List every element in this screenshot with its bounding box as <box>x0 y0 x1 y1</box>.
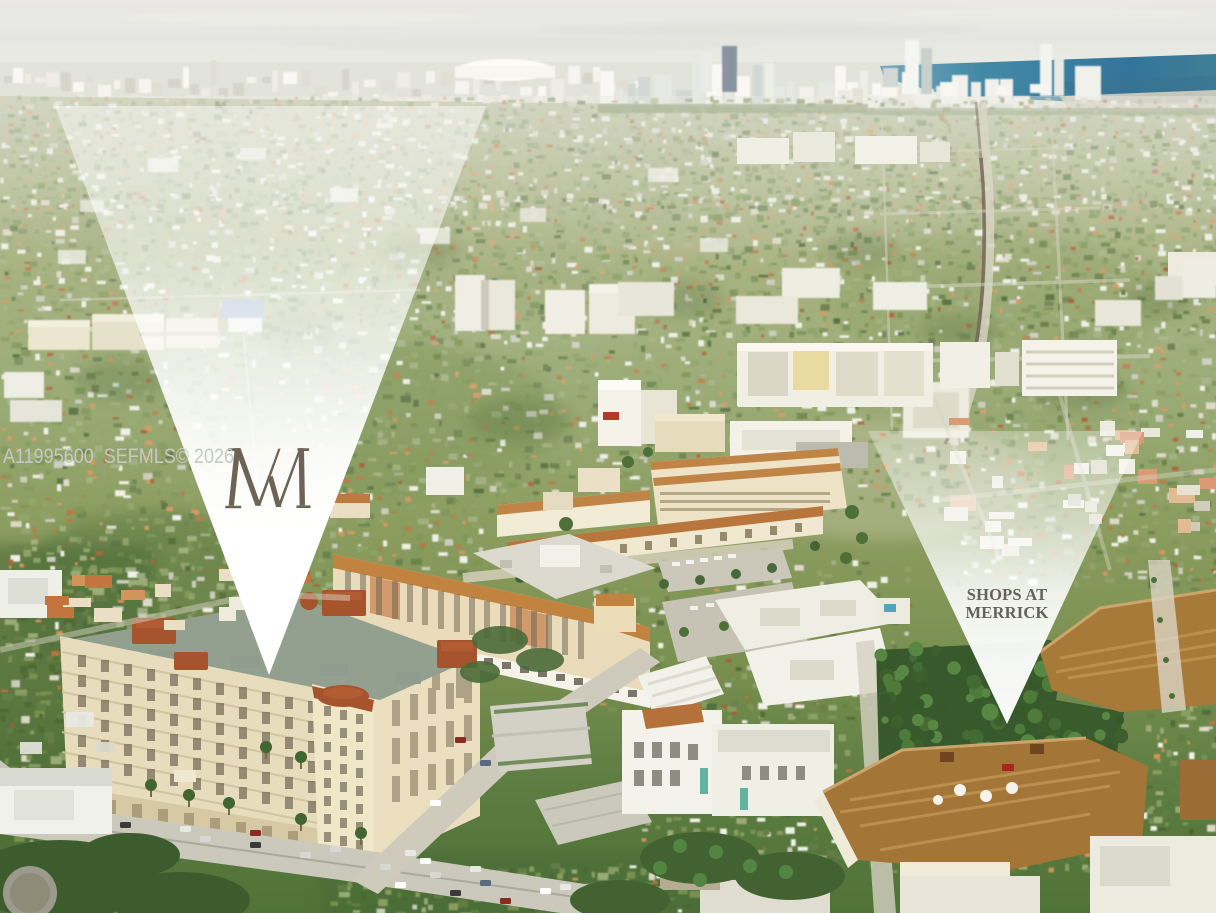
svg-text:MERRICK: MERRICK <box>966 603 1049 622</box>
svg-text:A11995600 SEFMLS© 2026: A11995600 SEFMLS© 2026 <box>3 445 234 468</box>
svg-text:SHOPS AT: SHOPS AT <box>967 585 1048 604</box>
